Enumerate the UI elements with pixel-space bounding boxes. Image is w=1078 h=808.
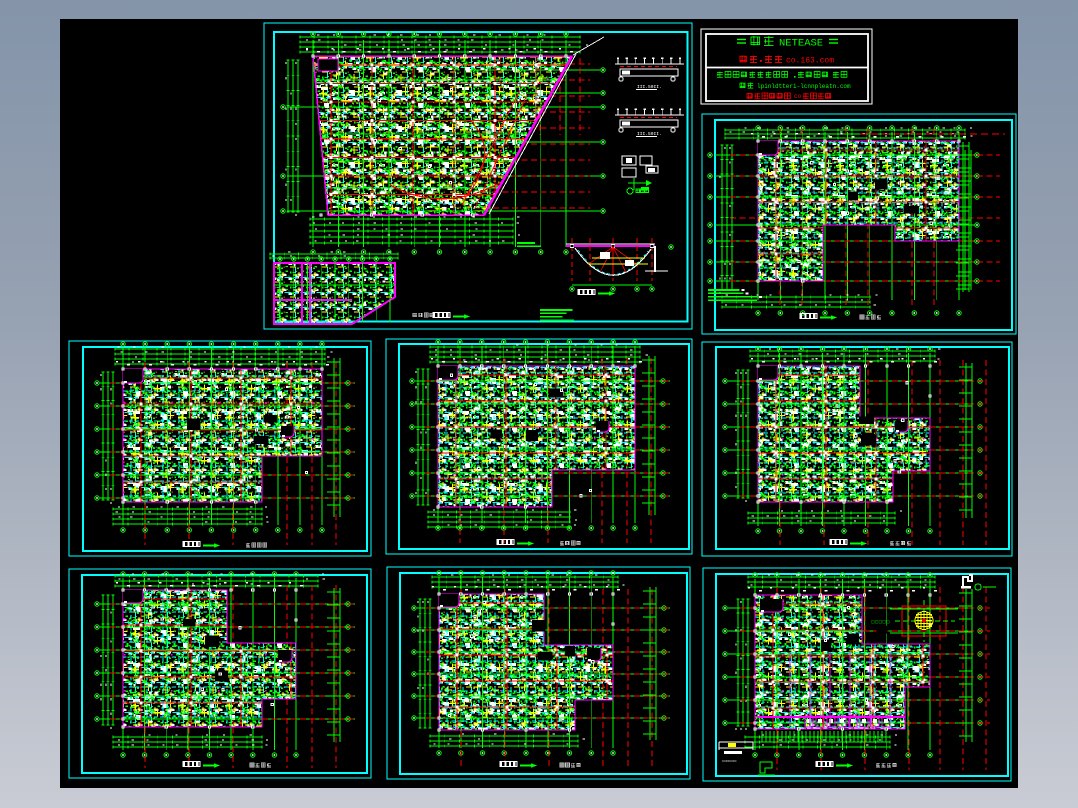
- svg-text:co: co: [794, 93, 802, 100]
- svg-text:◻◻◻◻◻: ◻◻◻◻◻: [871, 619, 890, 624]
- svg-text:lpinldtteri-lcnnpleatn.com: lpinldtteri-lcnnpleatn.com: [757, 83, 851, 90]
- svg-text:co.163.com: co.163.com: [786, 57, 834, 66]
- svg-text:▭▭▭▭: ▭▭▭▭: [722, 759, 737, 763]
- svg-text:NETEASE: NETEASE: [779, 38, 823, 50]
- svg-text:III.50II.: III.50II.: [637, 84, 662, 90]
- svg-text:III.50II.: III.50II.: [637, 131, 662, 137]
